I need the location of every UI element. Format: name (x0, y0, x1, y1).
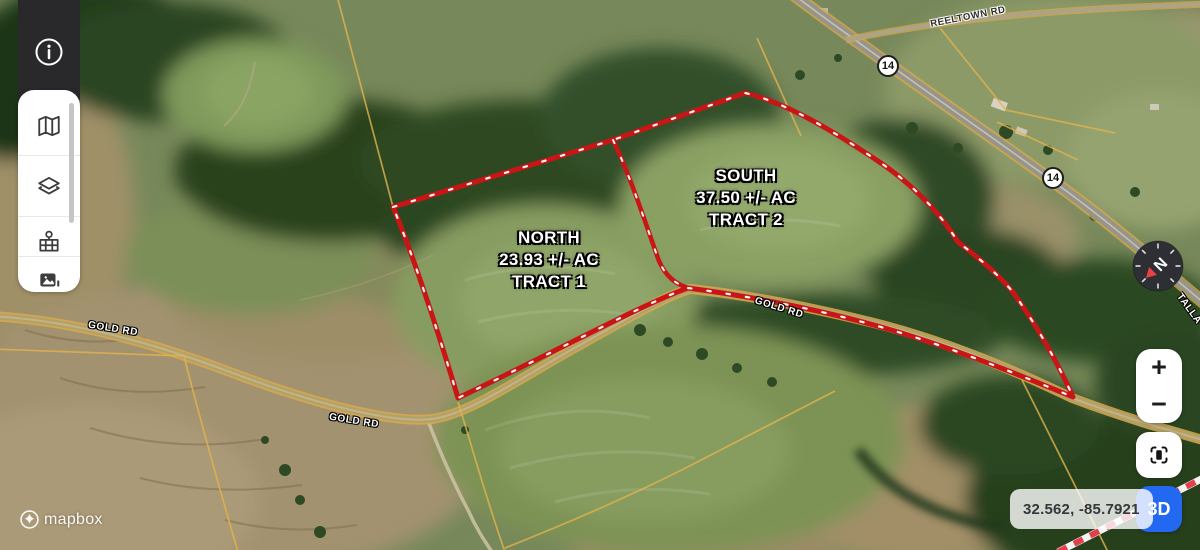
mapbox-attribution[interactable]: mapbox (20, 510, 103, 529)
zoom-out-button[interactable]: − (1136, 386, 1182, 423)
sidebar-scrollbar[interactable] (69, 103, 74, 223)
zoom-control: + − (1136, 349, 1182, 423)
satellite-map-canvas[interactable] (0, 0, 1200, 550)
highway-14-shield-south: 14 (1042, 167, 1064, 189)
cursor-coordinates: 32.562, -85.7921 (1010, 489, 1153, 529)
mapbox-logo-icon (20, 510, 39, 529)
sidebar-header (18, 0, 80, 100)
imagery-button[interactable] (33, 264, 65, 296)
mapbox-logo-text: mapbox (44, 511, 103, 529)
photo-icon (36, 267, 62, 293)
basemap-button[interactable] (33, 110, 65, 142)
highway-14-shield-north: 14 (877, 55, 899, 77)
map-icon (36, 113, 62, 139)
compass-icon: N (1131, 239, 1185, 293)
info-button[interactable] (33, 36, 65, 68)
parcels-button[interactable] (33, 226, 65, 258)
layers-icon (36, 173, 62, 199)
parcel-map-pin-icon (36, 229, 62, 255)
zoom-in-button[interactable]: + (1136, 349, 1182, 386)
fit-bounds-button[interactable] (1136, 432, 1182, 478)
layers-button[interactable] (33, 170, 65, 202)
viewfinder-icon (1148, 444, 1170, 466)
info-icon (34, 37, 64, 67)
compass-control[interactable]: N (1131, 239, 1185, 293)
map-application: NORTH 23.93 +/- AC TRACT 1 SOUTH 37.50 +… (0, 0, 1200, 550)
